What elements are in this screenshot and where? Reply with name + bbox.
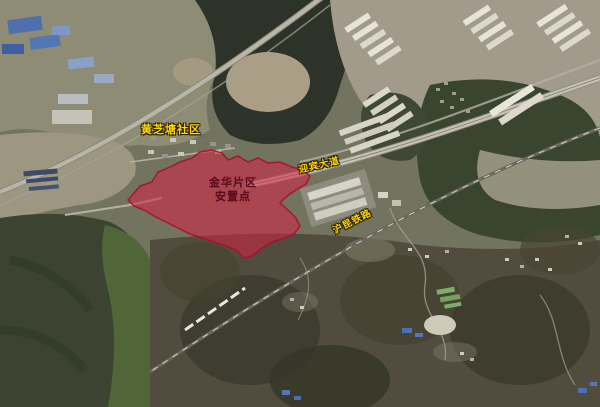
site-label-line1: 金华片区 bbox=[200, 176, 266, 190]
resettlement-site-label: 金华片区 安置点 bbox=[200, 176, 266, 204]
map-canvas bbox=[0, 0, 600, 407]
satellite-map[interactable]: 黄芝塘社区 金华片区 安置点 迎宾大道 沪昆铁路 bbox=[0, 0, 600, 407]
quarry-patch bbox=[424, 315, 456, 335]
small-building bbox=[378, 192, 388, 198]
community-label: 黄芝塘社区 bbox=[141, 121, 201, 137]
small-building bbox=[392, 200, 401, 206]
site-label-line2: 安置点 bbox=[200, 190, 266, 204]
